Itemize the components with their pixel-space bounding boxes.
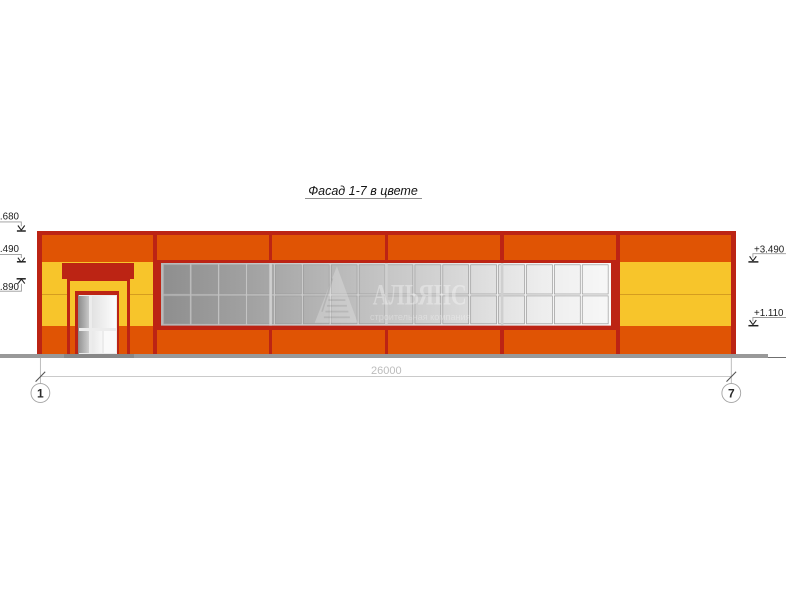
svg-text:+4.680: +4.680 <box>0 212 20 223</box>
svg-text:26000: 26000 <box>371 365 402 377</box>
svg-text:7: 7 <box>728 387 735 401</box>
svg-text:+3.490: +3.490 <box>0 244 20 255</box>
svg-text:1: 1 <box>37 387 44 401</box>
